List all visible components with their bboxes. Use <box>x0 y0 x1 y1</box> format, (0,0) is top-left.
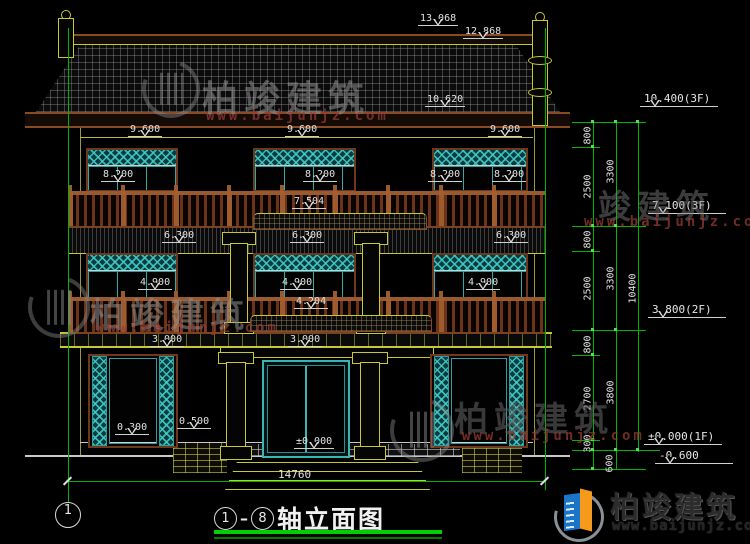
axis-line-1 <box>68 28 69 503</box>
elevation-triangle-icon <box>478 32 488 50</box>
elevation-triangle-icon <box>665 457 675 477</box>
column-1f-left-base <box>220 446 252 460</box>
elevation-triangle-icon <box>189 422 199 440</box>
window-lattice <box>255 150 354 166</box>
watermark-url: www.baijunjz.com <box>584 214 750 230</box>
elevation-marker: 6.300 <box>162 230 196 254</box>
dim-value: 2500 <box>583 267 594 311</box>
dim-value: 600 <box>605 442 616 486</box>
elevation-triangle-icon <box>658 311 668 331</box>
elevation-marker: ±0.000 <box>294 436 334 460</box>
elevation-triangle-icon <box>300 340 310 358</box>
elevation-triangle-icon <box>433 19 443 37</box>
elevation-triangle-icon <box>304 202 314 220</box>
dim-value: 800 <box>583 323 594 367</box>
elevation-triangle-icon <box>478 283 488 301</box>
elevation-marker: 9.600 <box>128 124 162 148</box>
entrance-steps <box>225 456 430 490</box>
elevation-triangle-icon <box>506 236 516 254</box>
watermark-url: www.baijunjz.com <box>206 108 389 124</box>
title-underline <box>214 530 442 534</box>
overall-dimension: 14760 <box>278 468 311 481</box>
axis-bubble-1: 1 <box>55 502 81 528</box>
window-lattice <box>434 255 526 271</box>
elevation-marker: 13.068 <box>418 13 458 37</box>
dim-value: 10400 <box>628 267 639 311</box>
elevation-marker: 9.600 <box>285 124 319 148</box>
elevation-marker: 0.500 <box>177 416 211 440</box>
elevation-triangle-icon <box>306 302 316 320</box>
elevation-marker: 8.200 <box>101 169 135 193</box>
elevation-marker: 3.000 <box>150 334 184 358</box>
logo-building-orange <box>580 489 592 532</box>
elevation-marker: 4.204 <box>294 296 328 320</box>
elevation-marker: 7.504 <box>292 196 326 220</box>
dim-tick <box>636 120 639 123</box>
elevation-marker: 4.900 <box>466 277 500 301</box>
level-marker: -0.600 <box>655 449 733 477</box>
elevation-marker: 6.300 <box>290 230 324 254</box>
bottom-dim-line <box>68 481 546 482</box>
watermark-logo-bars <box>47 289 72 324</box>
elevation-triangle-icon <box>127 428 137 446</box>
elevation-triangle-icon <box>174 236 184 254</box>
level-marker: 10.400(3F) <box>640 92 718 120</box>
column-1f-left-shaft <box>226 362 246 448</box>
elevation-triangle-icon <box>440 100 450 118</box>
column-2f-right-shaft <box>362 243 380 325</box>
brick-pier-left <box>173 443 227 473</box>
dim-tick <box>614 120 617 123</box>
watermark-logo-bars <box>160 73 183 105</box>
company-url: www.baijunjz.com <box>612 518 750 534</box>
dim-value: 2500 <box>583 165 594 209</box>
elevation-marker: 8.200 <box>303 169 337 193</box>
finial-ring-2 <box>528 88 552 97</box>
column-1f-right-shaft <box>360 362 380 448</box>
dim-tick <box>614 328 617 331</box>
company-logo-icon <box>550 486 602 538</box>
finial-ring-1 <box>528 56 552 65</box>
watermark-logo-bars <box>410 412 436 448</box>
dim-value: 3300 <box>606 257 617 301</box>
elevation-marker: 8.200 <box>492 169 526 193</box>
title-axis-from-bubble: 1 <box>214 507 237 530</box>
dim-tick <box>591 467 594 470</box>
window-side-lattice <box>92 356 107 446</box>
elevation-marker: 9.600 <box>488 124 522 148</box>
window-side-lattice <box>159 356 174 446</box>
elevation-triangle-icon <box>297 130 307 148</box>
elevation-marker: 8.200 <box>428 169 462 193</box>
title-axis-to-bubble: 8 <box>251 507 274 530</box>
elevation-triangle-icon <box>650 100 660 120</box>
column-1f-right-base <box>354 446 386 460</box>
title-underline-thin <box>214 537 442 539</box>
logo-building-blue <box>564 493 580 531</box>
canopy-2f <box>253 213 427 230</box>
elevation-triangle-icon <box>140 130 150 148</box>
elevation-marker: 12.868 <box>463 26 503 50</box>
window-lattice <box>434 150 526 166</box>
elevation-triangle-icon <box>309 442 319 460</box>
cad-elevation-canvas: 13.068 12.868 10.620 9.600 9.600 9.600 8… <box>0 0 750 544</box>
window-lattice <box>255 255 354 271</box>
elevation-marker: 0.300 <box>115 422 149 446</box>
watermark-url: www.baijunjz.com <box>96 320 279 336</box>
level-marker: 3.800(2F) <box>648 303 726 331</box>
window-lattice <box>88 150 176 166</box>
title-dash: – <box>240 509 248 528</box>
roof-finial-left <box>58 18 74 58</box>
elevation-triangle-icon <box>504 175 514 193</box>
company-logo-block: 柏竣建筑 www.baijunjz.com <box>548 482 748 542</box>
elevation-triangle-icon <box>113 175 123 193</box>
watermark-url: www.baijunjz.com <box>462 428 645 444</box>
elevation-triangle-icon <box>162 340 172 358</box>
dim-tick <box>636 448 639 451</box>
dim-value: 800 <box>583 114 594 158</box>
elevation-marker: 6.300 <box>494 230 528 254</box>
elevation-triangle-icon <box>302 236 312 254</box>
elevation-triangle-icon <box>500 130 510 148</box>
elevation-triangle-icon <box>440 175 450 193</box>
window-lattice <box>88 255 176 271</box>
elevation-triangle-icon <box>315 175 325 193</box>
elevation-marker: 3.000 <box>288 334 322 358</box>
elevation-marker: 10.620 <box>425 94 465 118</box>
